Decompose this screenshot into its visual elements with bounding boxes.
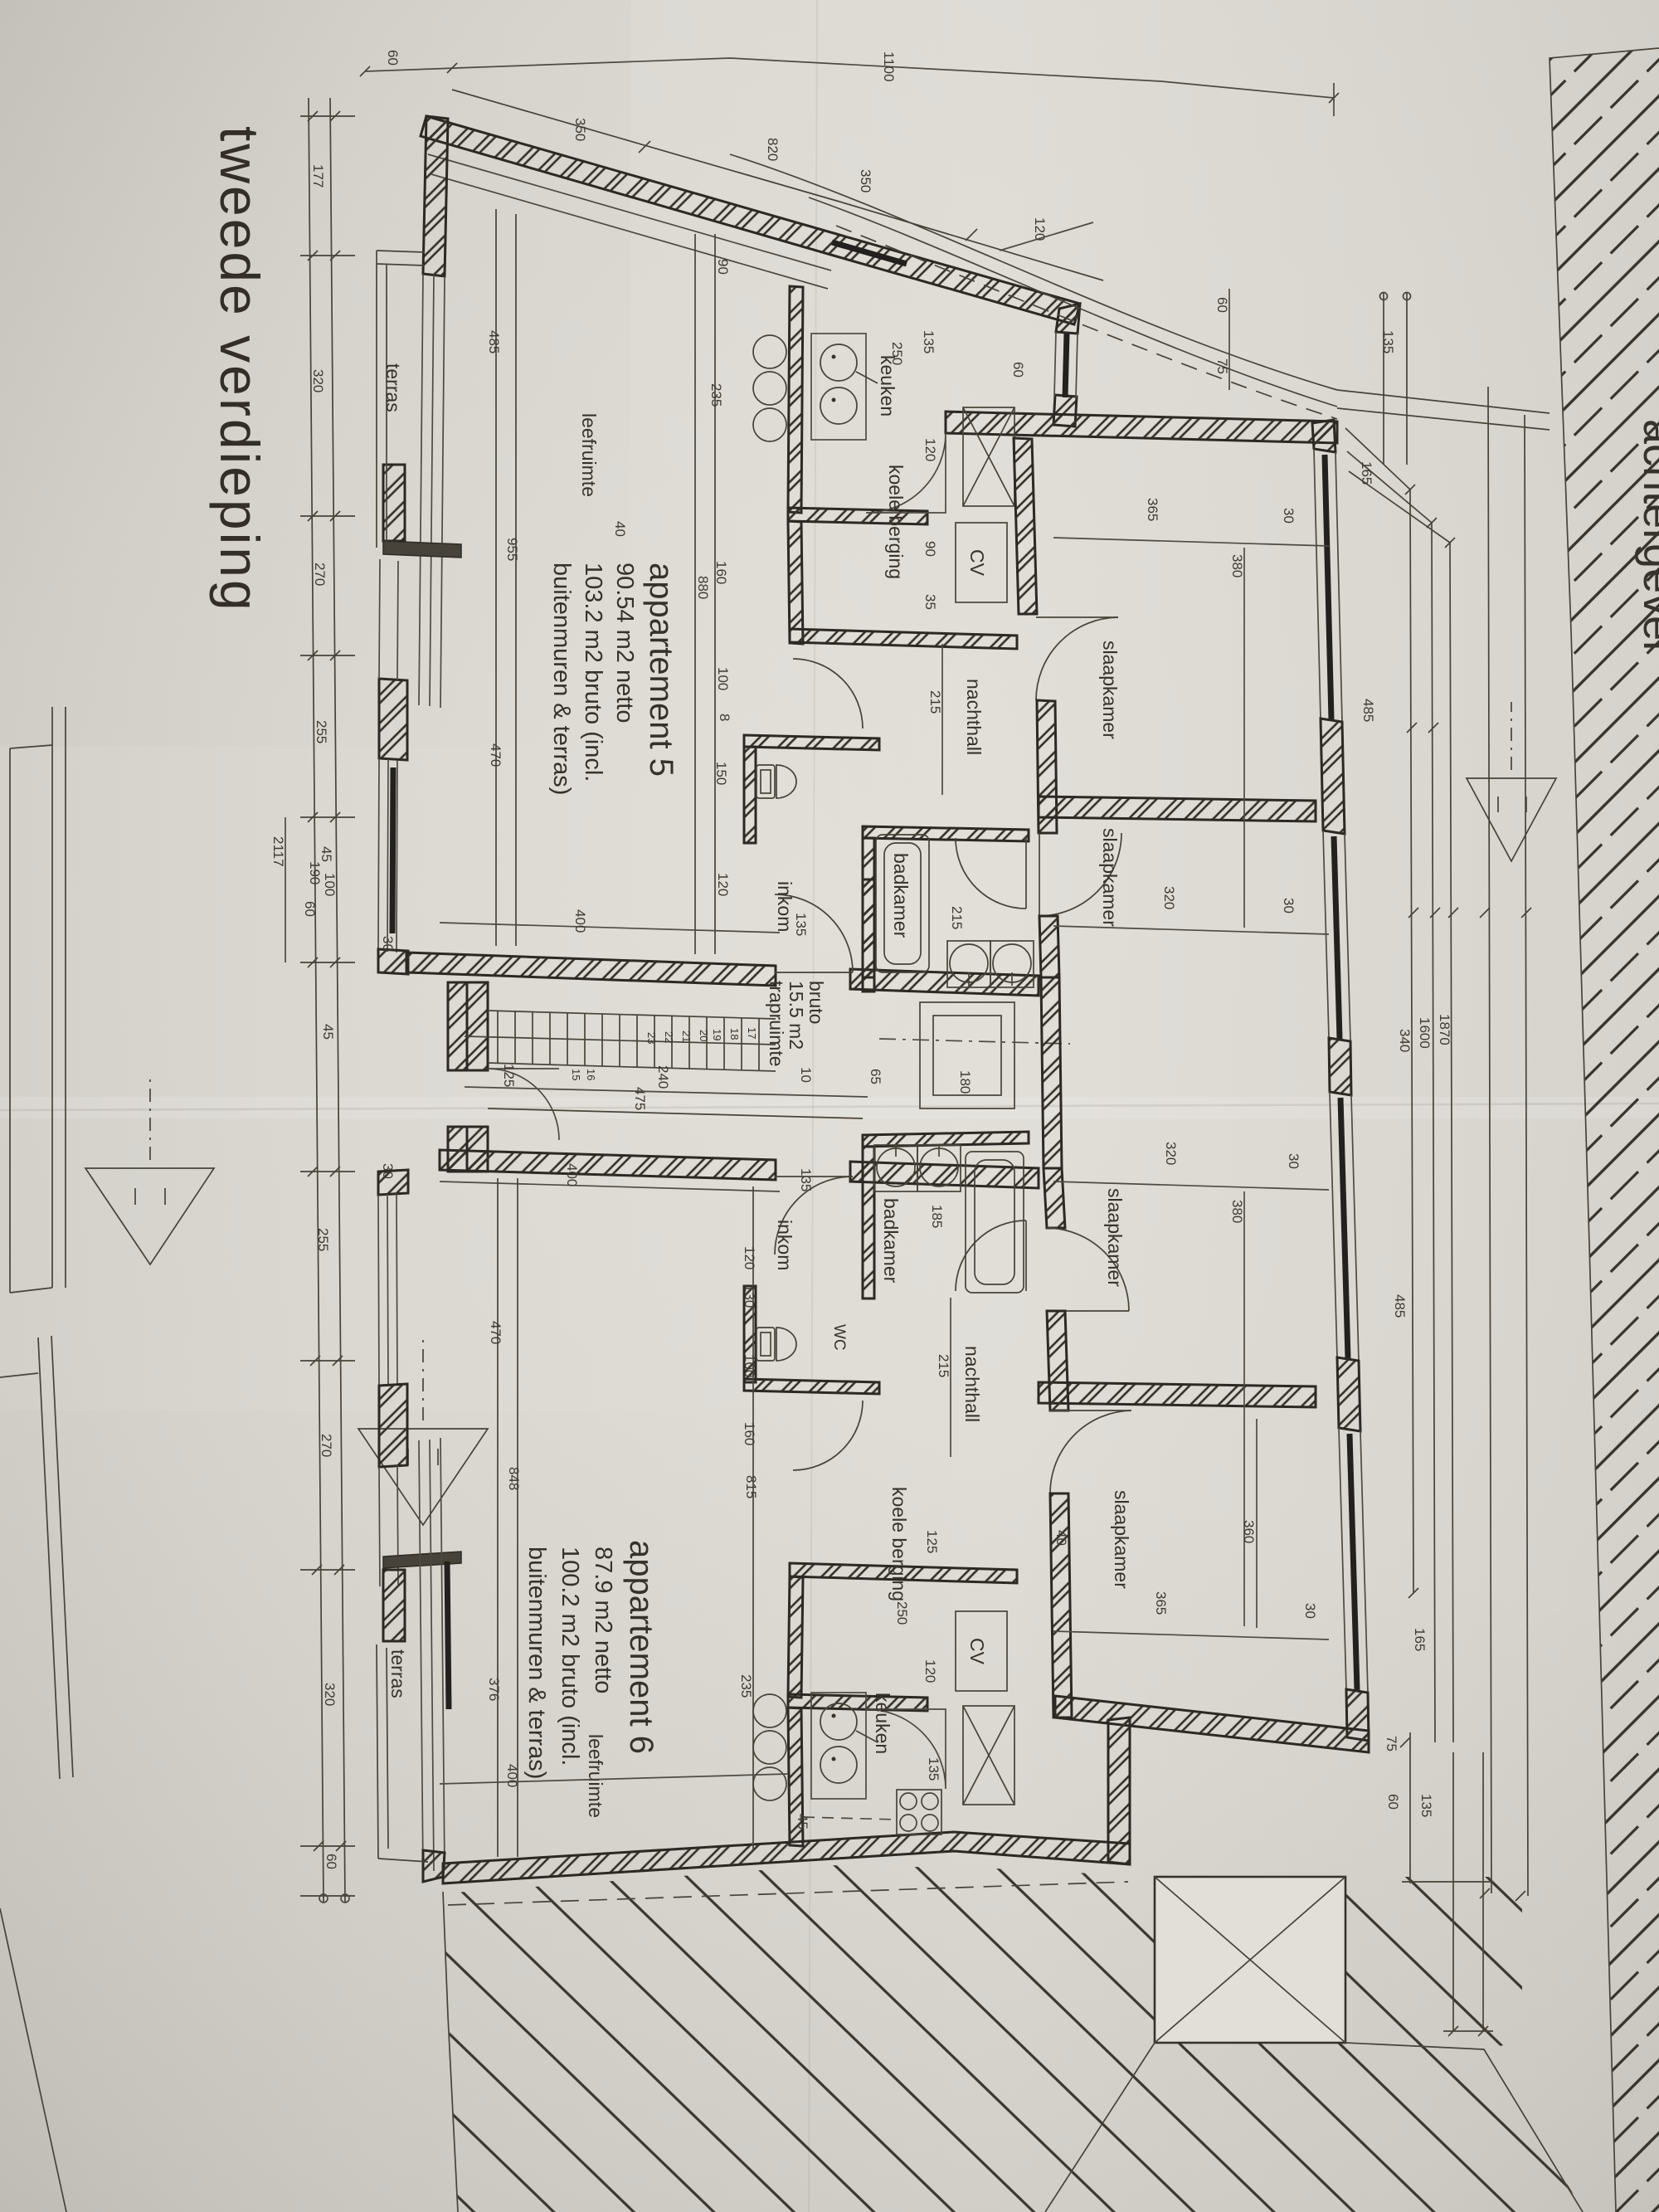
svg-text:320: 320	[310, 369, 326, 392]
svg-text:bruto: bruto	[805, 981, 827, 1024]
svg-text:achtergevel: achtergevel	[1634, 419, 1659, 650]
svg-text:250: 250	[889, 342, 905, 365]
svg-text:270: 270	[312, 563, 328, 586]
svg-text:350: 350	[858, 169, 873, 192]
svg-text:1600: 1600	[1417, 1017, 1433, 1049]
svg-text:135: 135	[798, 1168, 814, 1191]
svg-text:20: 20	[698, 1030, 710, 1041]
svg-text:250: 250	[894, 1601, 910, 1625]
svg-text:CV: CV	[966, 1638, 988, 1665]
svg-text:60: 60	[385, 50, 401, 66]
svg-text:848: 848	[506, 1467, 522, 1490]
svg-text:160: 160	[713, 561, 729, 584]
svg-text:buitenmuren & terras): buitenmuren & terras)	[548, 563, 575, 795]
svg-text:340: 340	[1397, 1029, 1413, 1052]
svg-text:30: 30	[1281, 898, 1297, 914]
svg-text:badkamer: badkamer	[890, 853, 912, 938]
svg-text:103.2 m2 bruto (incl.: 103.2 m2 bruto (incl.	[580, 563, 606, 782]
svg-text:100: 100	[742, 1354, 757, 1377]
svg-text:215: 215	[949, 906, 965, 929]
svg-text:60: 60	[1385, 1794, 1401, 1810]
svg-text:45: 45	[319, 846, 334, 862]
svg-text:koele berging: koele berging	[888, 1487, 910, 1601]
svg-text:215: 215	[936, 1354, 951, 1377]
svg-text:1100: 1100	[881, 51, 897, 82]
svg-text:35: 35	[922, 594, 938, 610]
svg-text:400: 400	[572, 909, 588, 933]
svg-text:15: 15	[570, 1069, 582, 1080]
svg-text:trapruimte: trapruimte	[766, 981, 787, 1067]
svg-text:8: 8	[717, 714, 732, 721]
svg-text:376: 376	[486, 1678, 502, 1701]
svg-text:120: 120	[742, 1246, 757, 1269]
svg-text:appartement 5: appartement 5	[643, 563, 679, 777]
svg-text:1870: 1870	[1437, 1014, 1452, 1045]
svg-text:160: 160	[742, 1422, 757, 1445]
svg-text:320: 320	[1163, 1142, 1179, 1165]
svg-text:inkom: inkom	[774, 1220, 795, 1270]
svg-text:270: 270	[319, 1434, 334, 1457]
svg-text:40: 40	[1053, 1530, 1069, 1546]
svg-text:terras: terras	[382, 363, 404, 412]
svg-text:485: 485	[1392, 1294, 1408, 1318]
svg-text:60: 60	[302, 901, 318, 917]
svg-text:485: 485	[1360, 699, 1376, 722]
svg-text:177: 177	[310, 164, 326, 188]
svg-text:380: 380	[1229, 554, 1245, 577]
svg-text:240: 240	[655, 1065, 671, 1089]
svg-text:60: 60	[1214, 297, 1230, 313]
svg-text:slaapkamer: slaapkamer	[1099, 828, 1121, 927]
svg-text:485: 485	[486, 330, 502, 353]
svg-text:120: 120	[1032, 217, 1048, 241]
svg-text:30: 30	[1302, 1603, 1318, 1619]
svg-text:slaapkamer: slaapkamer	[1099, 641, 1121, 739]
svg-text:125: 125	[501, 1064, 517, 1087]
svg-text:150: 150	[713, 762, 729, 785]
svg-text:keuken: keuken	[872, 1693, 893, 1754]
svg-text:75: 75	[1214, 358, 1230, 374]
svg-text:30: 30	[380, 936, 396, 952]
svg-text:leefruimte: leefruimte	[578, 413, 600, 497]
svg-text:45: 45	[795, 1814, 810, 1830]
svg-text:350: 350	[572, 118, 588, 141]
svg-text:30: 30	[380, 1163, 396, 1179]
svg-text:400: 400	[504, 1764, 520, 1787]
svg-text:100: 100	[322, 873, 338, 896]
svg-text:165: 165	[1359, 461, 1374, 485]
svg-text:190: 190	[307, 861, 323, 884]
svg-text:inkom: inkom	[774, 881, 795, 932]
svg-text:135: 135	[1380, 330, 1396, 353]
svg-text:470: 470	[488, 1321, 504, 1344]
svg-text:365: 365	[1153, 1591, 1169, 1615]
svg-text:135: 135	[793, 913, 809, 936]
svg-text:365: 365	[1145, 498, 1160, 521]
svg-text:75: 75	[1384, 1736, 1399, 1752]
svg-text:leefruimte: leefruimte	[585, 1734, 606, 1818]
svg-text:255: 255	[315, 1228, 331, 1251]
svg-text:90: 90	[715, 259, 731, 275]
svg-text:120: 120	[715, 873, 731, 896]
svg-text:16: 16	[585, 1069, 597, 1080]
svg-text:buitenmuren & terras): buitenmuren & terras)	[523, 1547, 550, 1779]
svg-text:320: 320	[1161, 886, 1177, 909]
svg-text:820: 820	[765, 138, 781, 161]
svg-text:165: 165	[1412, 1628, 1428, 1651]
svg-text:CV: CV	[966, 549, 988, 577]
svg-text:koele berging: koele berging	[885, 465, 907, 579]
svg-text:15.5 m2: 15.5 m2	[786, 981, 807, 1050]
svg-text:235: 235	[738, 1674, 754, 1698]
svg-text:100: 100	[715, 667, 731, 690]
svg-text:terras: terras	[387, 1649, 409, 1698]
svg-text:18: 18	[728, 1028, 741, 1040]
svg-text:470: 470	[488, 743, 504, 767]
svg-text:WC: WC	[830, 1324, 848, 1351]
svg-text:130: 130	[742, 1284, 757, 1308]
svg-text:87.9 m2 netto: 87.9 m2 netto	[590, 1547, 616, 1693]
svg-text:22: 22	[663, 1031, 675, 1043]
svg-text:135: 135	[921, 330, 937, 353]
svg-text:40: 40	[612, 521, 628, 537]
svg-text:nachthall: nachthall	[963, 679, 985, 755]
svg-text:65: 65	[868, 1069, 883, 1084]
svg-text:120: 120	[922, 1659, 938, 1683]
svg-text:320: 320	[322, 1683, 338, 1706]
svg-text:955: 955	[504, 538, 520, 561]
svg-text:slaapkamer: slaapkamer	[1104, 1188, 1126, 1287]
svg-text:255: 255	[314, 720, 329, 743]
svg-text:215: 215	[927, 690, 943, 714]
svg-text:30: 30	[1286, 1153, 1301, 1169]
svg-text:60: 60	[1010, 362, 1026, 378]
svg-text:21: 21	[680, 1030, 693, 1042]
svg-text:100.2 m2 bruto (incl.: 100.2 m2 bruto (incl.	[557, 1547, 583, 1766]
svg-text:nachthall: nachthall	[961, 1346, 983, 1422]
svg-text:2117: 2117	[270, 836, 286, 867]
svg-text:360: 360	[1241, 1520, 1257, 1543]
svg-text:10: 10	[798, 1067, 814, 1083]
svg-text:815: 815	[743, 1475, 759, 1498]
svg-text:45: 45	[320, 1024, 336, 1040]
svg-text:180: 180	[957, 1070, 973, 1094]
svg-text:appartement 6: appartement 6	[623, 1540, 659, 1754]
svg-text:90.54 m2 netto: 90.54 m2 netto	[611, 563, 638, 723]
svg-text:30: 30	[1281, 508, 1297, 524]
svg-text:880: 880	[695, 576, 711, 599]
svg-text:tweede verdieping: tweede verdieping	[209, 126, 270, 613]
svg-text:125: 125	[924, 1530, 940, 1553]
svg-text:19: 19	[711, 1029, 723, 1040]
svg-text:120: 120	[922, 438, 938, 461]
svg-text:slaapkamer: slaapkamer	[1111, 1490, 1132, 1589]
svg-text:23: 23	[645, 1032, 658, 1044]
svg-text:90: 90	[922, 541, 938, 557]
svg-text:135: 135	[1418, 1794, 1434, 1817]
svg-text:400: 400	[564, 1163, 580, 1186]
svg-text:185: 185	[929, 1205, 945, 1228]
svg-text:17: 17	[746, 1027, 758, 1039]
svg-text:135: 135	[926, 1757, 941, 1781]
svg-text:235: 235	[708, 383, 724, 407]
svg-text:60: 60	[324, 1854, 339, 1869]
svg-text:380: 380	[1229, 1200, 1245, 1223]
svg-text:badkamer: badkamer	[880, 1198, 902, 1284]
